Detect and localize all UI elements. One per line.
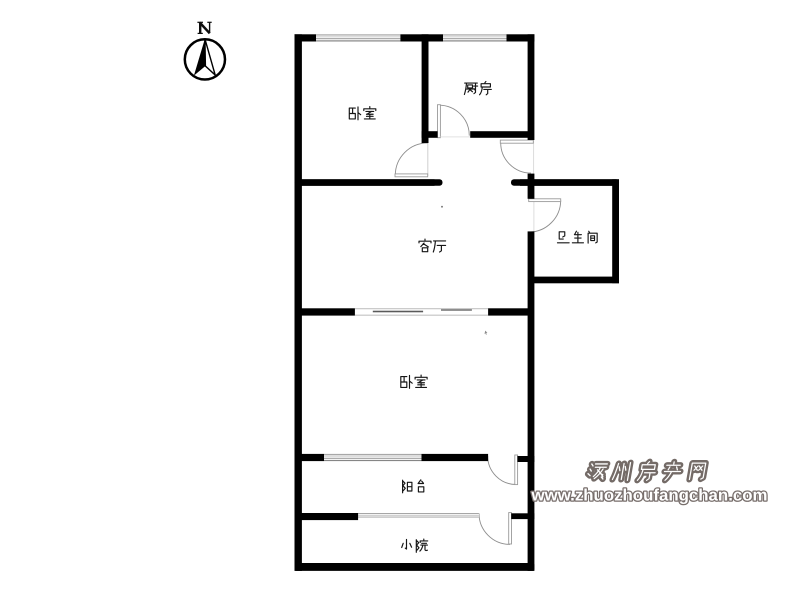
svg-text:www.zhuozhoufangchan.com: www.zhuozhoufangchan.com (530, 486, 767, 504)
